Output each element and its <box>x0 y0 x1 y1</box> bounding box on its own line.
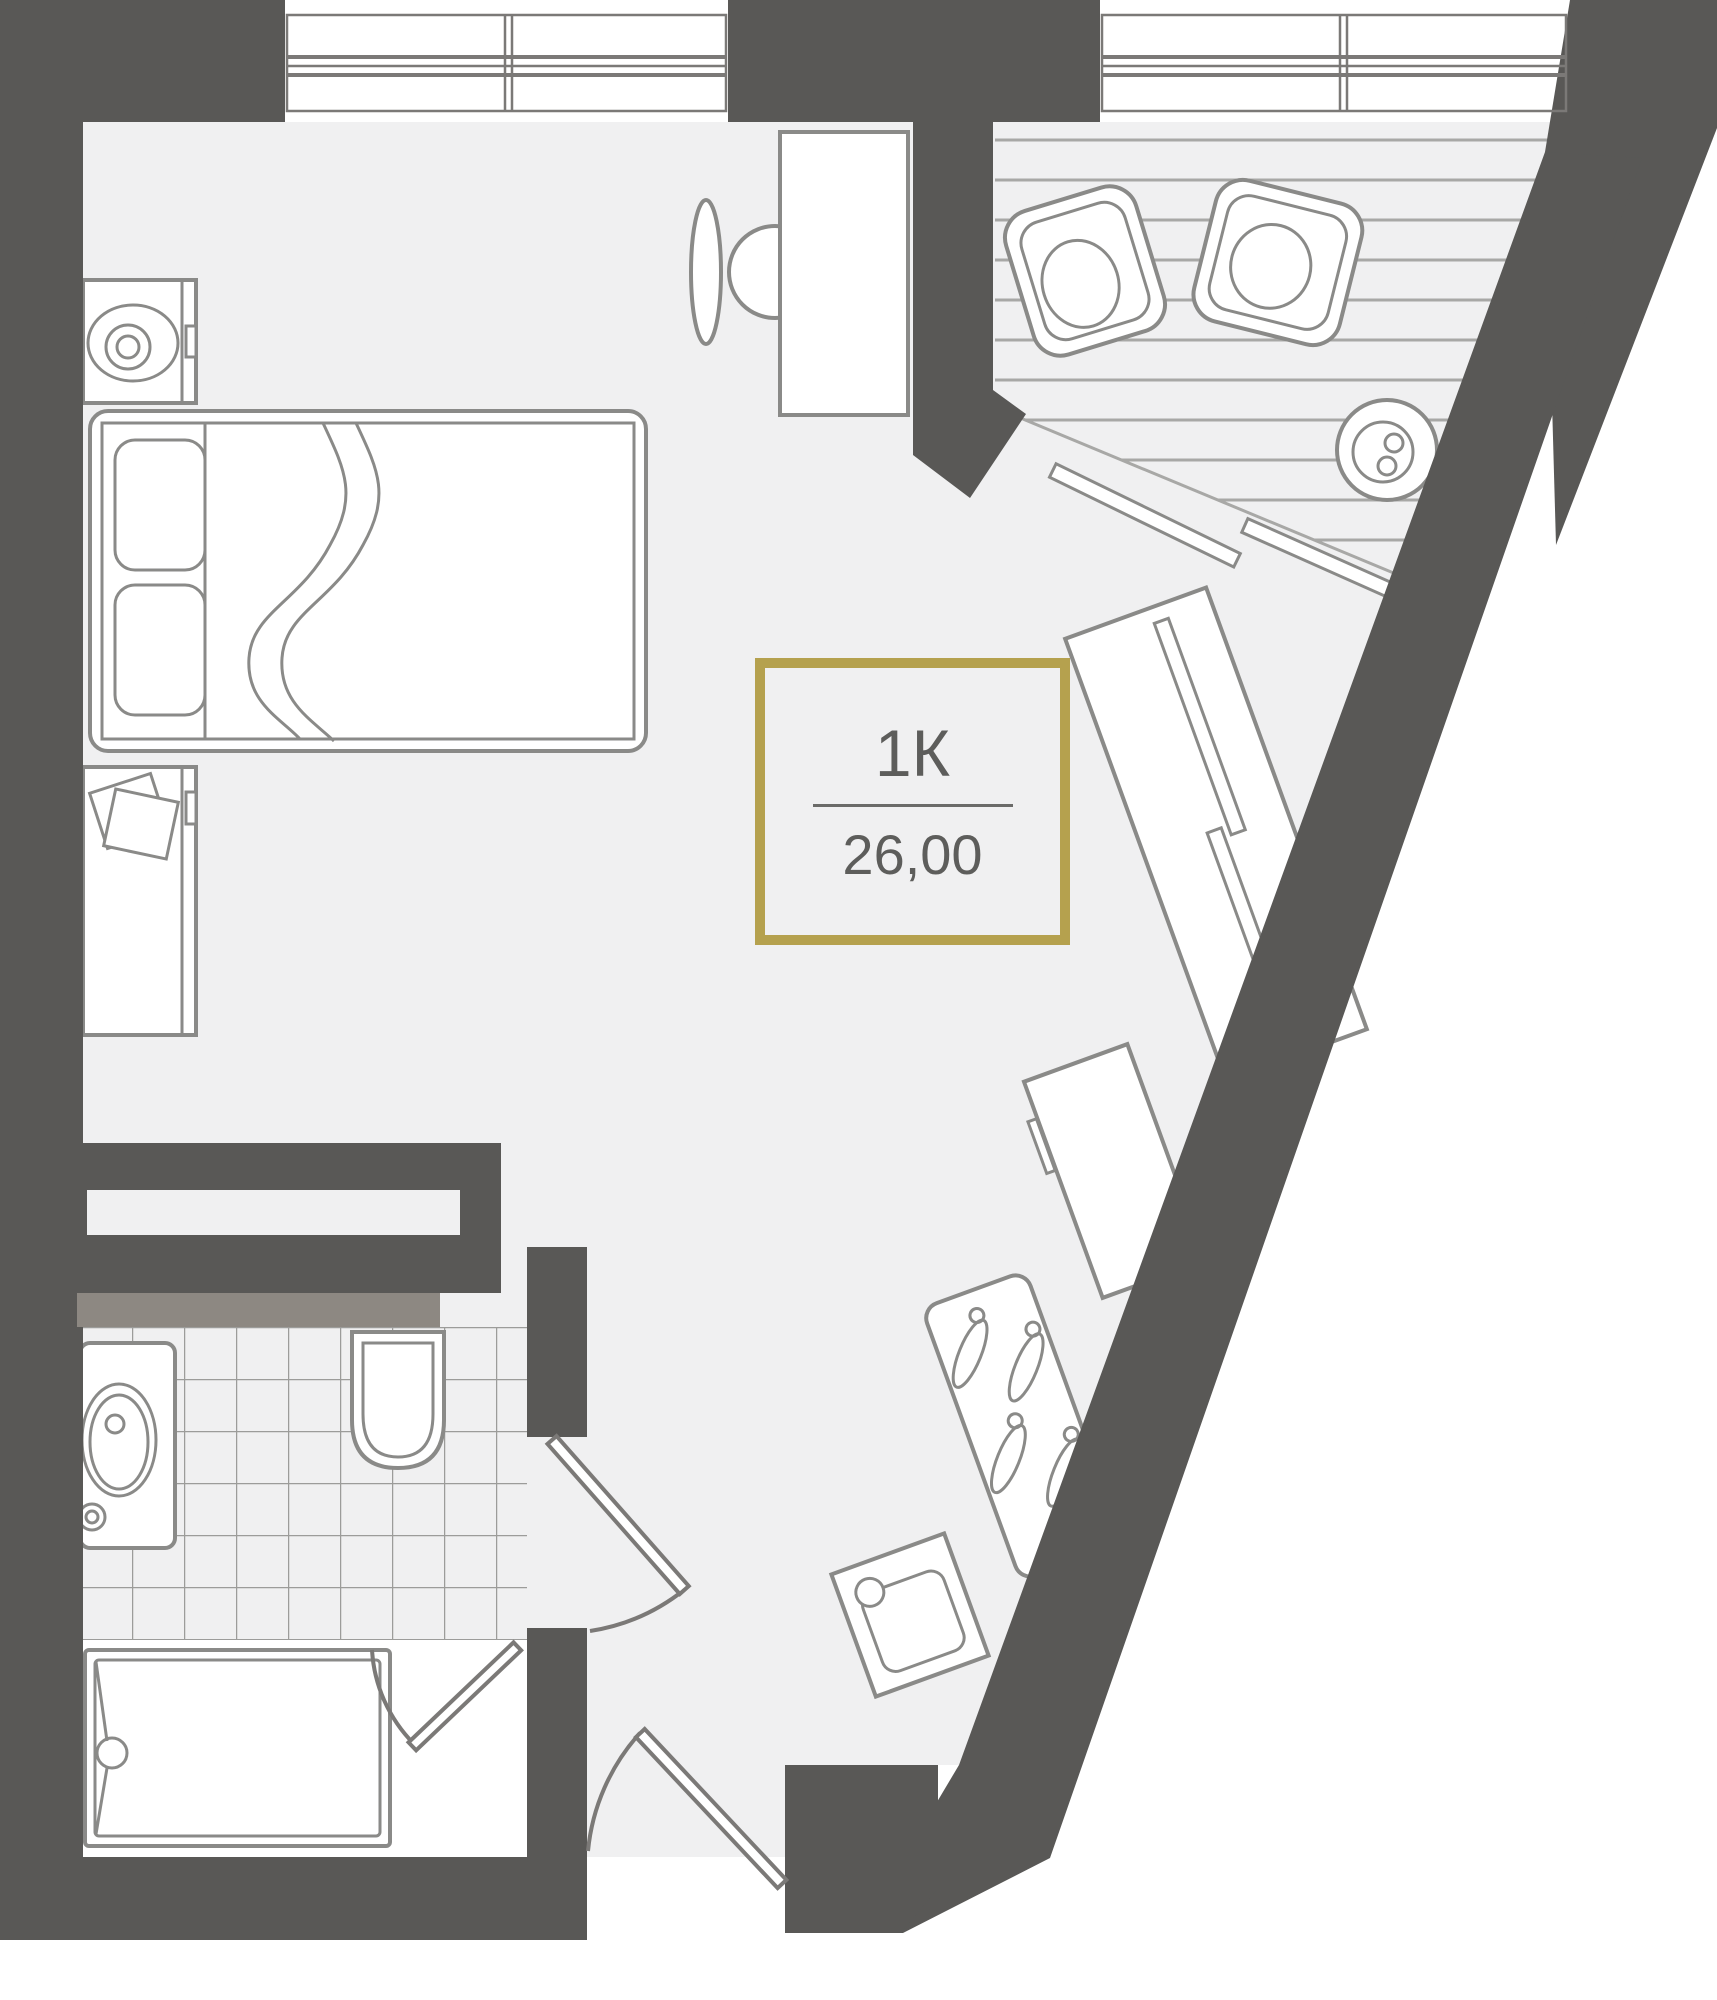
wall-bathroom-pillar-bottom <box>527 1628 587 1857</box>
nightstand-icon <box>83 280 196 403</box>
papers-icon <box>104 789 179 859</box>
bathroom <box>79 1327 527 1857</box>
desk-icon <box>780 132 908 415</box>
window-icon <box>1102 15 1566 111</box>
round-table-icon <box>1337 400 1437 500</box>
bathroom-parapet-band <box>77 1293 440 1327</box>
bathroom-sink-icon <box>79 1343 175 1548</box>
unit-label-box: 1К 26,00 <box>755 658 1070 945</box>
unit-label-divider <box>813 804 1013 807</box>
nightstand-icon <box>83 767 196 1035</box>
floorplan-page: 1К 26,00 <box>0 0 1717 2000</box>
double-bed-icon <box>90 411 646 751</box>
window-icon <box>287 15 726 111</box>
wall-bottom <box>0 1857 587 1940</box>
shower-tray-icon <box>85 1650 390 1846</box>
wall-left <box>0 122 83 1940</box>
floorplan-canvas <box>0 0 1717 2000</box>
toilet-icon <box>352 1332 444 1468</box>
wall-entry-block <box>785 1765 938 1933</box>
wall-top-center-block <box>728 0 1100 122</box>
unit-area-label: 26,00 <box>842 827 982 883</box>
closet-niche <box>87 1190 460 1235</box>
unit-type-label: 1К <box>875 720 950 786</box>
wall-bathroom-pillar-top <box>527 1247 587 1437</box>
wall-top-left-block <box>0 0 285 122</box>
